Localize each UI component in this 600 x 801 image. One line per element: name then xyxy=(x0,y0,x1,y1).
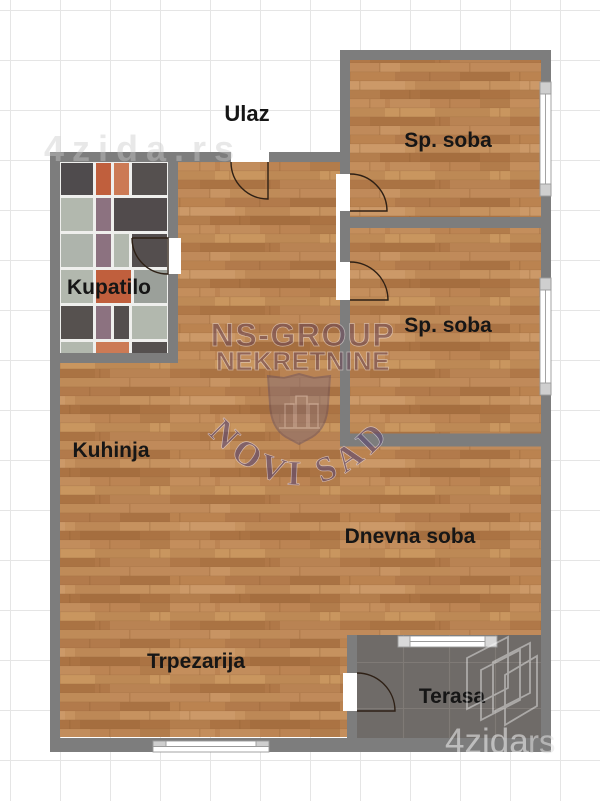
svg-text:Kuhinja: Kuhinja xyxy=(73,439,150,462)
svg-text:Trpezarija: Trpezarija xyxy=(147,650,245,673)
svg-text:Sp. soba: Sp. soba xyxy=(404,314,492,337)
svg-text:4zida.rs: 4zida.rs xyxy=(44,128,242,169)
svg-text:Ulaz: Ulaz xyxy=(224,101,269,126)
svg-text:4zida: 4zida xyxy=(445,722,529,761)
svg-text:NEKRETNINE: NEKRETNINE xyxy=(216,346,390,376)
svg-text:Kupatilo: Kupatilo xyxy=(67,276,151,299)
svg-text:Sp. soba: Sp. soba xyxy=(404,129,492,152)
svg-text:Dnevna soba: Dnevna soba xyxy=(345,525,476,548)
svg-text:rs: rs xyxy=(528,723,556,760)
